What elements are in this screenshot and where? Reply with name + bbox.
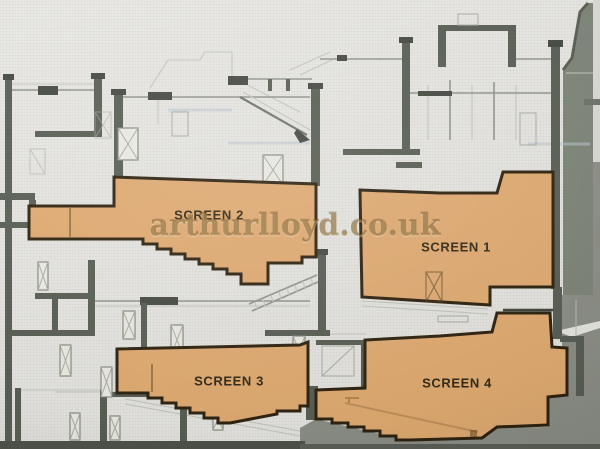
screen-2-label: SCREEN 2	[174, 208, 244, 223]
door-icon	[30, 149, 45, 174]
screen-1-shape	[360, 172, 553, 305]
screen-3-label: SCREEN 3	[194, 374, 264, 389]
section-drawing	[0, 0, 600, 449]
door-icon	[101, 367, 112, 397]
screen-4-label: SCREEN 4	[422, 376, 492, 391]
ground-line-left	[0, 441, 305, 449]
door-icon	[118, 128, 138, 160]
door-icon	[110, 416, 120, 440]
door-icon	[60, 345, 71, 376]
right-shading	[563, 0, 600, 302]
door-icon	[263, 155, 283, 185]
screen-1-label: SCREEN 1	[421, 240, 491, 255]
screen-2-shape	[29, 177, 316, 284]
door-icon	[123, 311, 135, 339]
door-icon	[38, 262, 48, 290]
door-icon	[70, 413, 80, 440]
ground-line-right	[300, 444, 600, 449]
cinema-section-photo: SCREEN 1 SCREEN 2 SCREEN 3 SCREEN 4 arth…	[0, 0, 600, 449]
door-icon	[322, 346, 354, 376]
